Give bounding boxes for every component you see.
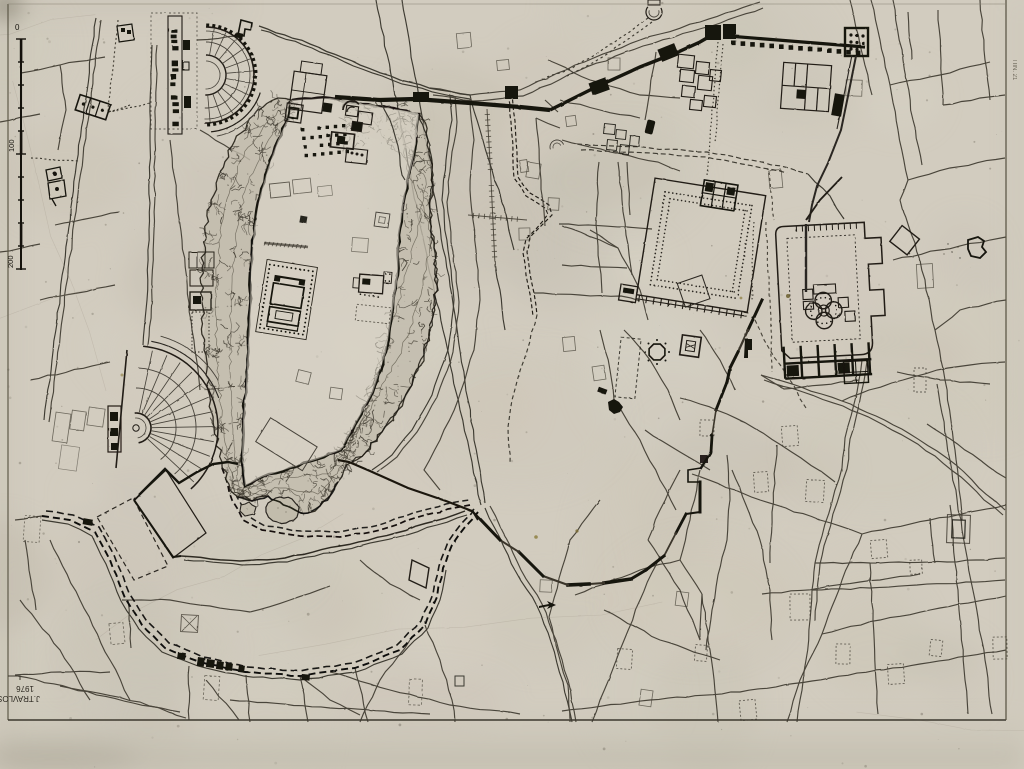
svg-text:100: 100: [7, 139, 16, 152]
svg-text:1976: 1976: [16, 684, 34, 693]
svg-text:ΠΙΝ. 21: ΠΙΝ. 21: [1011, 60, 1017, 81]
svg-text:200: 200: [6, 255, 15, 268]
svg-text:J.TRAVLOS: J.TRAVLOS: [0, 694, 40, 703]
svg-text:0: 0: [15, 23, 20, 32]
